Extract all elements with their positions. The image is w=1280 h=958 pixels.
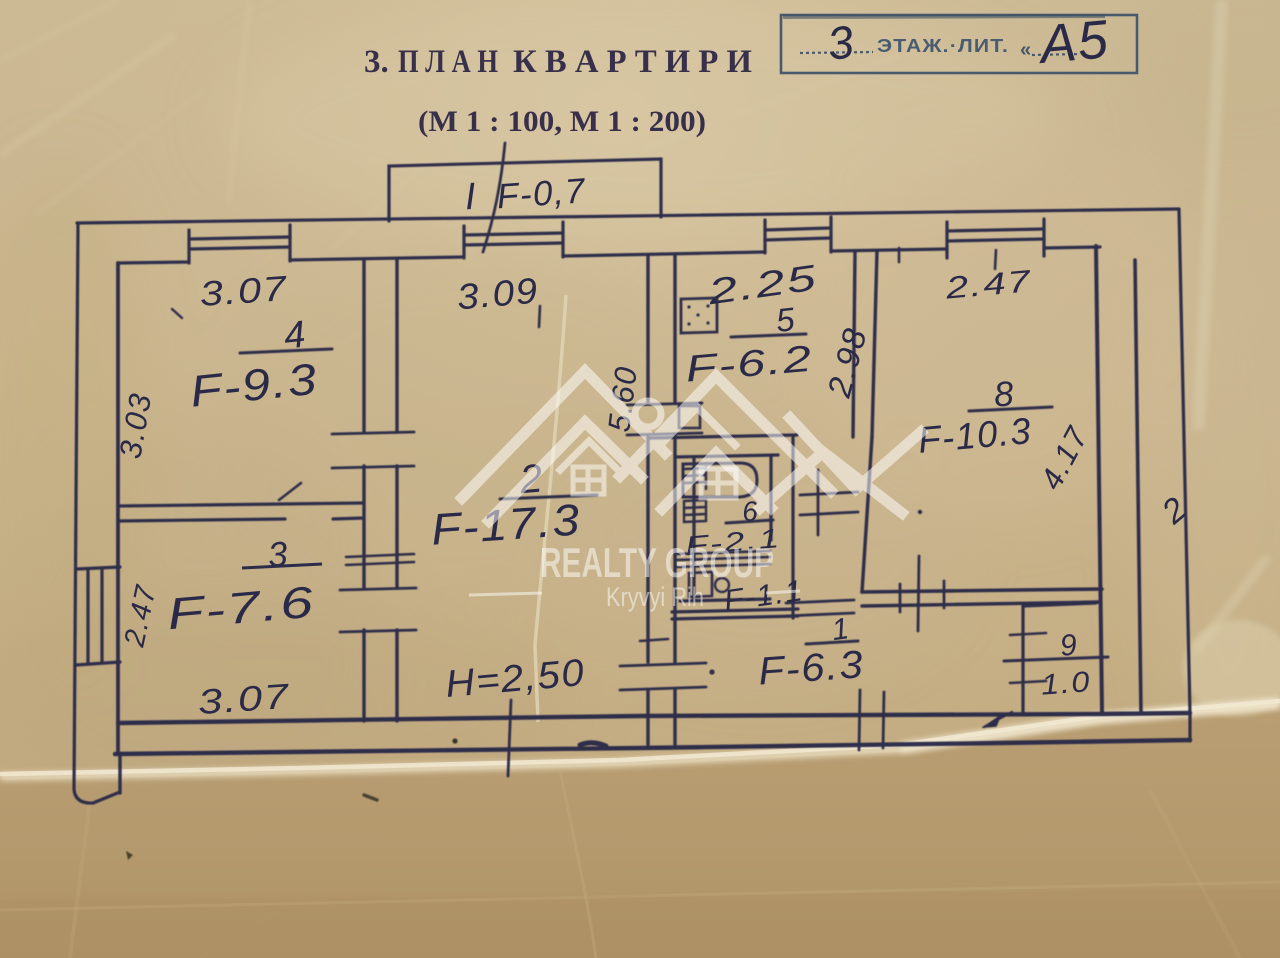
svg-text:F-6.3: F-6.3 (757, 643, 866, 693)
svg-text:I: I (464, 176, 478, 219)
svg-text:3.09: 3.09 (455, 269, 540, 317)
svg-text:П Л А Н: П Л А Н (398, 44, 498, 80)
svg-text:F-0,7: F-0,7 (496, 171, 588, 216)
svg-text:1.0: 1.0 (1040, 666, 1092, 701)
svg-text:«: « (1020, 39, 1031, 61)
svg-text:3.07: 3.07 (199, 269, 290, 314)
svg-text:9: 9 (1058, 628, 1080, 663)
svg-text:Kryvyi Rih: Kryvyi Rih (606, 582, 704, 612)
svg-text:4: 4 (282, 313, 309, 357)
svg-text:А5: А5 (1035, 9, 1112, 75)
svg-text:3: 3 (266, 534, 290, 575)
svg-text:8: 8 (992, 374, 1016, 415)
svg-text:5: 5 (774, 300, 798, 339)
svg-text:REALTY GROUP: REALTY GROUP (540, 539, 774, 586)
svg-text:(М 1 : 100, М 1 : 200): (М 1 : 100, М 1 : 200) (418, 105, 706, 138)
svg-text:ЭТАЖ.·ЛИТ.: ЭТАЖ.·ЛИТ. (877, 36, 1009, 56)
svg-text:3.: 3. (364, 44, 389, 80)
svg-text:3.07: 3.07 (197, 677, 292, 722)
svg-text:К В А Р Т И Р И: К В А Р Т И Р И (513, 44, 752, 80)
